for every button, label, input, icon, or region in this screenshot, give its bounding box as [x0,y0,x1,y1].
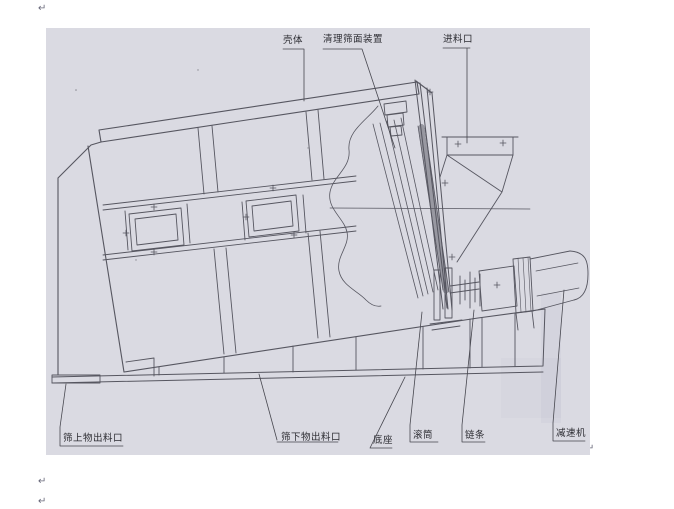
document-page: ↵ ↵ ↵ ↵ [0,0,674,509]
leader-inlet [443,48,470,143]
label-reducer: 减速机 [556,427,586,439]
scanned-diagram: 壳体 清理筛面装置 进料口 筛上物出料口 筛下物出料口 底座 滚筒 链条 减速机 [46,28,590,455]
paragraph-mark: ↵ [38,4,46,14]
label-base: 底座 [373,434,393,446]
label-drum: 滚筒 [413,429,433,441]
reducer-motor [479,251,588,330]
label-inlet: 进料口 [443,33,473,45]
chain-ladder [418,126,449,292]
label-undersize-outlet: 筛下物出料口 [281,431,341,443]
paragraph-mark: ↵ [38,497,46,507]
feed-hopper [440,137,518,262]
section-break-wave [330,106,381,306]
leader-shell [283,49,304,101]
inspection-window-2 [246,195,299,237]
coupling [450,272,480,308]
leader-cleaner [323,49,395,148]
shell-outline [52,142,545,383]
label-shell: 壳体 [283,34,303,46]
label-cleaner: 清理筛面装置 [323,33,383,45]
leader-drum [410,312,438,442]
frame-struts [198,110,330,354]
assembly-tick-marks [123,89,506,288]
leader-undersize-outlet [259,374,338,442]
inspection-window-1 [129,208,184,251]
label-chain: 链条 [465,429,485,441]
machine-side-view-drawing: 壳体 清理筛面装置 进料口 筛上物出料口 筛下物出料口 底座 滚筒 链条 减速机 [46,28,590,455]
datum-line [330,208,530,209]
paragraph-mark: ↵ [38,477,46,487]
label-oversize-outlet: 筛上物出料口 [63,432,123,444]
